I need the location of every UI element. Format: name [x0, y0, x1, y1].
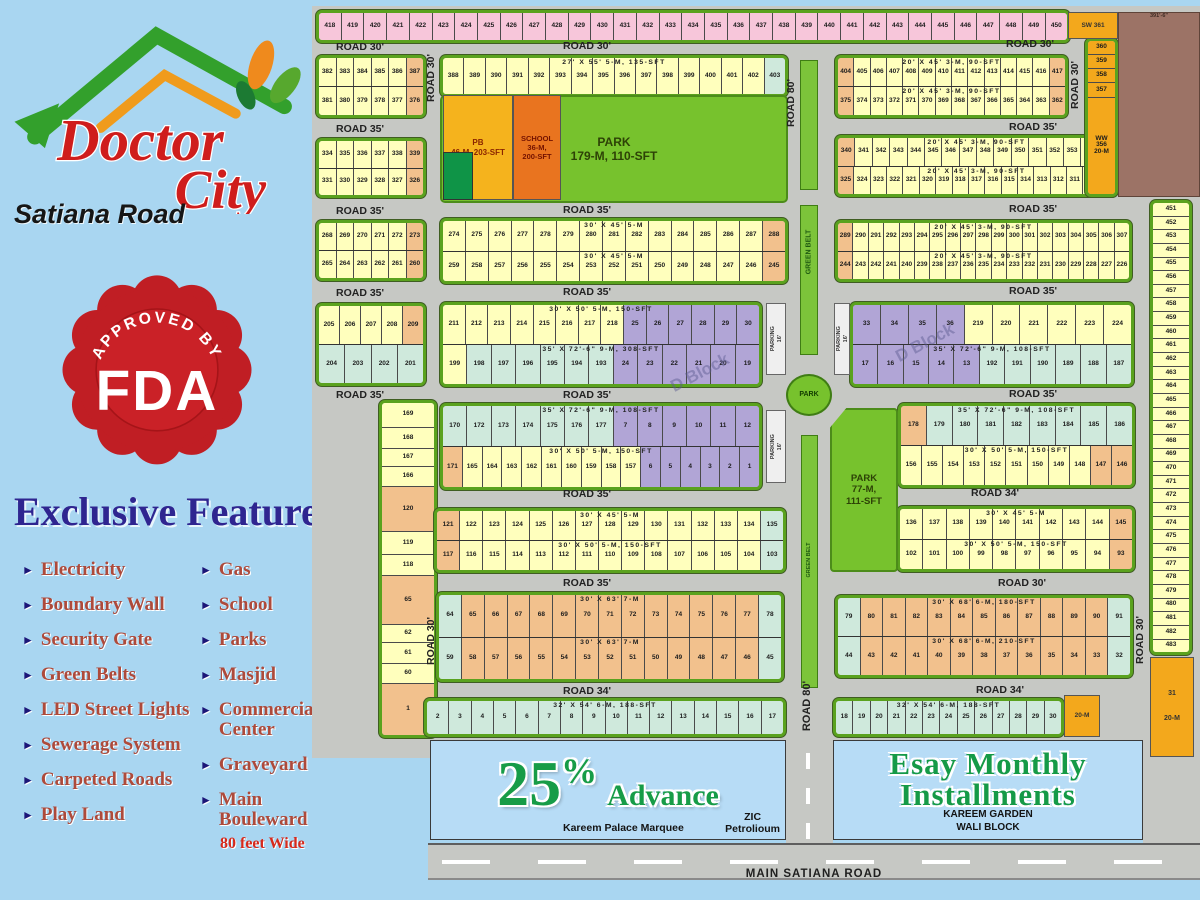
plot-cell: 55	[529, 638, 552, 680]
block-376-387: 382383384385386387381380379378377376	[316, 55, 426, 118]
plot-cell: 131	[667, 511, 690, 540]
plot-cell: 246	[739, 252, 762, 282]
block-32-91: 7980818283848586878889909130' X 68' 6-M,…	[835, 595, 1133, 678]
plot-cell: 230	[1052, 252, 1067, 280]
logo-word-city: City	[175, 159, 267, 214]
road-dash	[1114, 860, 1162, 864]
plot-cell: 128	[598, 511, 621, 540]
plot-cell: 100	[946, 540, 969, 570]
plot-cell: 272	[388, 223, 406, 250]
plot-cell: 360	[1088, 41, 1115, 54]
plot-cell: 311	[1066, 167, 1082, 195]
plot-cell: 8	[637, 406, 661, 446]
plot-cell: 459	[1153, 311, 1189, 325]
plot-cell: 472	[1153, 488, 1189, 502]
plot-cell: 11	[710, 406, 734, 446]
block-388-403: 3883893903913923933943953963973983994004…	[440, 55, 788, 97]
plot-cell: 393	[549, 58, 570, 94]
plot-cell: 195	[540, 345, 564, 384]
plot-cell: 58	[461, 638, 484, 680]
plot-cell: 259	[443, 252, 465, 282]
plot-cell: 30	[1044, 701, 1061, 734]
plot-cell: 298	[975, 223, 990, 251]
plot-cell: 97	[1015, 540, 1038, 570]
plot-cell: 45	[758, 638, 781, 680]
road-dash	[442, 860, 490, 864]
plot-cell: 369	[935, 87, 951, 115]
block-362-417: 4044054064074084094104114124134144154164…	[835, 55, 1068, 118]
plot-cell: 347	[959, 138, 976, 166]
plot-cell: 418	[319, 13, 341, 40]
plot-cell: 10	[605, 701, 627, 734]
plot-cell: 245	[762, 252, 785, 282]
plot-cell: 26	[974, 701, 991, 734]
plot-cell: 215	[533, 305, 556, 344]
plot-cell: 22	[905, 701, 922, 734]
plot-cell: 17	[761, 701, 783, 734]
brown-reserved-area: 391'-6"	[1118, 12, 1200, 197]
plot-cell: 321	[902, 167, 918, 195]
plot-cell: 178	[901, 406, 926, 445]
advance-percent-sign: %	[561, 751, 597, 791]
plot-cell: 206	[339, 306, 360, 344]
zic-petroleum-label: ZIC Petrolioum	[725, 811, 780, 835]
road-label: ROAD 30'	[1069, 61, 1081, 109]
plot-cell: 37	[995, 637, 1018, 675]
plot-cell: 205	[319, 306, 339, 344]
feature-item: ►Boundary Wall	[22, 595, 200, 615]
plot-cell: 139	[969, 509, 992, 539]
plot-cell: 402	[742, 58, 763, 94]
plot-cell: 185	[1080, 406, 1106, 445]
plot-cell: 3	[700, 447, 720, 487]
school-area: SCHOOL 36-M, 200-SFT	[513, 95, 561, 200]
block-187-224-dblock: 3334353621922022122222322417161514131921…	[850, 302, 1134, 387]
plot-cell: 415	[1016, 58, 1032, 86]
plot-cell: 53	[575, 638, 598, 680]
road-dash	[826, 860, 874, 864]
plot-cell: 384	[353, 58, 371, 86]
plot-cell: 222	[1047, 305, 1075, 344]
bullet-arrow-icon: ►	[200, 665, 212, 685]
plot-cell: 82	[905, 598, 928, 636]
plot-cell: 288	[762, 221, 785, 251]
road-label: ROAD 35'	[336, 123, 384, 135]
plot-cell: 336	[353, 141, 371, 168]
plot-cell: 239	[914, 252, 929, 280]
plot-cell: 89	[1062, 598, 1085, 636]
plot-cell: 216	[555, 305, 578, 344]
sw-plot-361-label: SW 361	[1081, 22, 1104, 30]
plot-cell: 198	[466, 345, 490, 384]
boulevard-width-note: 80 feet Wide	[220, 835, 318, 853]
plot-cell: 102	[900, 540, 922, 570]
plot-cell: 243	[852, 252, 867, 280]
plot-cell: 427	[522, 13, 545, 40]
plot-cell: 224	[1103, 305, 1131, 344]
plot-cell: 69	[552, 595, 575, 637]
feature-item: ►Green Belts	[22, 665, 200, 685]
plot-cell: 363	[1032, 87, 1048, 115]
block-2-17: 23456789101112131415161732' X 54' 6-M, 1…	[424, 698, 786, 737]
plot-cell: 413	[984, 58, 1000, 86]
plot-cell: 80	[860, 598, 883, 636]
block-146-186: 17817918018118218318418518635' X 72'-6" …	[898, 403, 1135, 488]
plot-cell: 180	[952, 406, 978, 445]
bullet-arrow-icon: ►	[22, 560, 34, 580]
plot-row: 331330329328327326	[319, 168, 423, 196]
road-label: GREEN BELT	[806, 542, 812, 577]
bullet-arrow-icon: ►	[200, 560, 212, 580]
plot-cell: 479	[1153, 584, 1189, 598]
gold-plot-31: 31 20-M	[1150, 657, 1194, 757]
plot-cell: 218	[600, 305, 623, 344]
plot-cell: 64	[439, 595, 461, 637]
feature-item: ►Electricity	[22, 560, 200, 580]
plot-cell: 104	[737, 541, 760, 570]
road-dash	[634, 860, 682, 864]
plot-cell: 299	[991, 223, 1006, 251]
plot-cell: 334	[319, 141, 336, 168]
feature-item: ►Commercial Center	[200, 700, 318, 740]
plot-cell: 15	[716, 701, 738, 734]
feature-item: ►Carpeted Roads	[22, 770, 200, 790]
plot-cell: 439	[795, 13, 818, 40]
plot-cell: 127	[575, 511, 598, 540]
plot-cell: 42	[882, 637, 905, 675]
features-column-1: ►Electricity►Boundary Wall►Security Gate…	[22, 560, 200, 863]
plot-cell: 193	[588, 345, 612, 384]
plot-cell: 7	[538, 701, 560, 734]
plot-cell: 1	[739, 447, 759, 487]
plot-cell: 421	[386, 13, 409, 40]
plot-row: 381380379378377376	[319, 86, 423, 115]
plot-cell: 35	[1040, 637, 1063, 675]
plot-cell: 388	[443, 58, 463, 94]
plot-cell: 47	[712, 638, 735, 680]
plot-cell: 203	[344, 345, 370, 383]
plot-cell: 14	[694, 701, 716, 734]
plot-cell: 400	[699, 58, 720, 94]
plot-cell: 77	[735, 595, 758, 637]
plot-cell: 477	[1153, 557, 1189, 571]
plot-cell: 162	[521, 447, 541, 487]
plot-cell: 377	[388, 87, 406, 115]
plot-cell: 429	[568, 13, 591, 40]
installments-line2: Installments	[834, 778, 1142, 813]
plot-cell: 101	[922, 540, 945, 570]
plot-cell: 87	[1017, 598, 1040, 636]
plot-cell: 160	[561, 447, 581, 487]
road-label: ROAD 35'	[563, 204, 611, 216]
plot-cell: 420	[363, 13, 386, 40]
plot-cell: 183	[1029, 406, 1055, 445]
feature-label: Security Gate	[41, 630, 152, 650]
plot-cell: 149	[1048, 446, 1069, 485]
plot-cell: 207	[360, 306, 381, 344]
plot-cell: 123	[482, 511, 505, 540]
plot-cell: 85	[972, 598, 995, 636]
road-label: ROAD 35'	[336, 287, 384, 299]
plot-cell: 78	[758, 595, 781, 637]
plot-cell: 142	[1039, 509, 1062, 539]
gold-plot-31-label: 31 20-M	[1164, 690, 1180, 724]
feature-item: ►Masjid	[200, 665, 318, 685]
plot-cell: 262	[371, 251, 389, 278]
plot-cell: 201	[397, 345, 423, 383]
plot-cell: 21	[887, 701, 904, 734]
plot-cell: 116	[459, 541, 482, 570]
plot-cell: 331	[319, 169, 336, 196]
plot-cell: 169	[382, 403, 434, 427]
plot-cell: 40	[927, 637, 950, 675]
plot-cell: 79	[838, 598, 860, 636]
plot-cell: 422	[409, 13, 432, 40]
block-326-339: 334335336337338339331330329328327326	[316, 138, 426, 198]
plot-cell: 405	[853, 58, 869, 86]
feature-item: ►Graveyard	[200, 755, 318, 775]
plot-cell: 111	[575, 541, 598, 570]
plot-cell: 152	[984, 446, 1005, 485]
road-30-right-lower	[1143, 743, 1200, 843]
plot-cell: 26	[646, 305, 669, 344]
brown-reserved-area-label: 391'-6"	[1150, 13, 1168, 20]
plot-row: 2892902912922932942952962972982993003013…	[838, 223, 1129, 251]
plot-cell: 255	[533, 252, 556, 282]
plot-cell: 359	[1088, 54, 1115, 68]
plot-cell: 456	[1153, 270, 1189, 284]
plot-cell: 364	[1016, 87, 1032, 115]
plot-cell: 419	[341, 13, 364, 40]
sw-plot-361: SW 361	[1068, 12, 1118, 39]
road-label: ROAD 35'	[563, 389, 611, 401]
plot-cell: 39	[950, 637, 973, 675]
plot-cell: 426	[500, 13, 523, 40]
plot-cell: 406	[870, 58, 886, 86]
plot-cell: 105	[714, 541, 737, 570]
park-roundabout: PARK	[786, 374, 832, 416]
plot-cell: 482	[1153, 625, 1189, 639]
plot-cell: 285	[693, 221, 716, 251]
bullet-arrow-icon: ►	[200, 790, 212, 830]
plot-cell: 296	[945, 223, 960, 251]
plot-cell: 387	[406, 58, 424, 86]
plot-cell: 173	[491, 406, 515, 446]
plot-cell: 258	[465, 252, 488, 282]
plot-cell: 269	[336, 223, 354, 250]
pink-strip-top: 4184194204214224234244254264274284294304…	[316, 10, 1070, 43]
advance-offer-box: 25%Advance Kareem Palace Marquee ZIC Pet…	[430, 740, 786, 840]
plot-cell: 280	[579, 221, 602, 251]
plot-cell: 86	[995, 598, 1018, 636]
plot-cell: 368	[951, 87, 967, 115]
plot-row: 1819202122232425262728293032' X 54' 6-M,…	[836, 701, 1061, 734]
plot-cell: 27	[668, 305, 691, 344]
plot-cell: 287	[739, 221, 762, 251]
plot-cell: 95	[1062, 540, 1085, 570]
plot-cell: 24	[939, 701, 956, 734]
plot-cell: 190	[1030, 345, 1055, 384]
plot-cell: 138	[946, 509, 969, 539]
plot-cell: 330	[336, 169, 354, 196]
plot-row: 15615515415315215115014914814714630' X 5…	[901, 445, 1132, 485]
bullet-arrow-icon: ►	[22, 630, 34, 650]
plot-cell: 449	[1022, 13, 1045, 40]
green-belt-top	[800, 60, 818, 190]
plot-cell: 176	[564, 406, 588, 446]
plot-cell: 228	[1083, 252, 1098, 280]
block-260-273: 268269270271272273265264263262261260	[316, 220, 426, 281]
plot-row: 33343536219220221222223224	[853, 305, 1131, 344]
plot-cell: 192	[979, 345, 1004, 384]
plot-cell: 445	[931, 13, 954, 40]
park-roundabout-label: PARK	[799, 391, 818, 399]
kareem-garden-label: KAREEM GARDEN WALI BLOCK	[834, 809, 1142, 834]
plot-cell: 284	[671, 221, 694, 251]
plot-cell: 286	[716, 221, 739, 251]
parking-strip-3-label: PARKING 16'	[769, 434, 782, 459]
plot-cell: 261	[388, 251, 406, 278]
plot-cell: 25	[623, 305, 646, 344]
plot-cell: 463	[1153, 366, 1189, 380]
plot-row: 17116516416316216116015915815765432130' …	[443, 446, 759, 487]
plot-cell: 28	[691, 305, 714, 344]
plot-cell: 68	[529, 595, 552, 637]
plot-cell: 172	[466, 406, 490, 446]
plot-cell: 414	[1000, 58, 1016, 86]
plot-cell: 46	[735, 638, 758, 680]
plot-cell: 117	[437, 541, 459, 570]
plot-cell: 455	[1153, 257, 1189, 271]
plot-cell: 375	[838, 87, 853, 115]
plot-cell: 324	[853, 167, 869, 195]
plot-cell: 475	[1153, 529, 1189, 543]
plot-cell: 113	[529, 541, 552, 570]
plot-cell: 399	[678, 58, 699, 94]
plot-cell: 254	[556, 252, 579, 282]
plot-row: 382383384385386387	[319, 58, 423, 86]
road-label: ROAD 35'	[1009, 203, 1057, 215]
plot-cell: 447	[976, 13, 999, 40]
kareem-palace-label: Kareem Palace Marquee	[563, 822, 684, 834]
plot-cell: 473	[1153, 502, 1189, 516]
plot-cell: 438	[772, 13, 795, 40]
plot-cell: 253	[579, 252, 602, 282]
plot-cell: 352	[1046, 138, 1063, 166]
feature-label: Electricity	[41, 560, 125, 580]
plot-cell: 81	[882, 598, 905, 636]
plot-cell: 91	[1107, 598, 1130, 636]
plot-cell: 424	[454, 13, 477, 40]
plot-cell: 107	[667, 541, 690, 570]
plot-cell: 174	[515, 406, 539, 446]
plot-cell: 423	[432, 13, 455, 40]
plot-cell: 300	[1006, 223, 1021, 251]
main-satiana-road: MAIN SATIANA ROAD	[428, 843, 1200, 880]
parking-strip-1-label: PARKING 16'	[769, 327, 782, 352]
road-label: ROAD 30'	[336, 41, 384, 53]
plot-cell: 226	[1114, 252, 1129, 280]
plot-cell: 365	[1000, 87, 1016, 115]
feature-label: Boundary Wall	[41, 595, 165, 615]
plot-cell: 327	[388, 169, 406, 196]
plot-cell: 4	[471, 701, 493, 734]
advance-word: Advance	[607, 779, 719, 812]
parking-strip-3: PARKING 16'	[766, 410, 786, 483]
plot-cell: 372	[886, 87, 902, 115]
plot-cell: 353	[1063, 138, 1080, 166]
advance-number: 25	[497, 748, 561, 819]
road-dash	[806, 788, 810, 804]
plot-cell: 451	[1153, 203, 1189, 216]
plot-cell: 20	[870, 701, 887, 734]
road-label: ROAD 30'	[425, 54, 437, 102]
plot-cell: 376	[406, 87, 424, 115]
plot-cell: 302	[1037, 223, 1052, 251]
plot-cell: 27	[992, 701, 1009, 734]
plot-cell: 326	[406, 169, 424, 196]
plot-cell: 209	[402, 306, 423, 344]
plot-cell: 446	[954, 13, 977, 40]
plot-cell: 391	[506, 58, 527, 94]
plot-cell: 416	[1032, 58, 1048, 86]
plot-cell: 151	[1005, 446, 1026, 485]
plot-cell: 161	[541, 447, 561, 487]
plot-cell: 155	[921, 446, 942, 485]
plot-cell: 464	[1153, 379, 1189, 393]
doctor-city-logo: Doctor City	[4, 2, 309, 214]
plot-cell: 122	[459, 511, 482, 540]
plot-cell: 351	[1028, 138, 1045, 166]
plot-cell: 386	[388, 58, 406, 86]
plot-cell: 282	[625, 221, 648, 251]
plot-cell: 136	[900, 509, 922, 539]
plot-cell: 4	[680, 447, 700, 487]
plot-cell: 433	[659, 13, 682, 40]
plot-cell: 146	[1111, 446, 1132, 485]
plot-cell: 385	[371, 58, 389, 86]
plot-cell: 265	[319, 251, 336, 278]
plot-cell: 237	[945, 252, 960, 280]
plot-cell: 208	[381, 306, 402, 344]
plot-cell: 390	[485, 58, 506, 94]
plot-cell: 297	[960, 223, 975, 251]
road-label: ROAD 35'	[1009, 121, 1057, 133]
plot-cell: 194	[564, 345, 588, 384]
plot-cell: 154	[942, 446, 963, 485]
plot-cell: 163	[501, 447, 521, 487]
feature-item: ►Parks	[200, 630, 318, 650]
plot-cell: 395	[592, 58, 613, 94]
plot-row: 23456789101112131415161732' X 54' 6-M, 1…	[427, 701, 783, 734]
plot-cell: 204	[319, 345, 344, 383]
plot-cell: 2	[427, 701, 448, 734]
plot-row: 204203202201	[319, 344, 423, 383]
road-label: ROAD 30'	[425, 617, 437, 665]
plot-cell: 313	[1033, 167, 1049, 195]
plot-cell: 468	[1153, 434, 1189, 448]
school-area-label: SCHOOL 36-M, 200-SFT	[521, 134, 553, 161]
plot-cell: 212	[465, 305, 488, 344]
plot-row: 2592582572562552542532522512502492482472…	[443, 251, 785, 282]
feature-label: School	[219, 595, 273, 615]
plot-cell: 238	[929, 252, 944, 280]
plot-cell: 252	[602, 252, 625, 282]
plot-cell: 8	[560, 701, 582, 734]
fda-approval-seal: APPROVED BY FDA	[52, 270, 262, 475]
plot-cell: 444	[908, 13, 931, 40]
plot-cell: 28	[1009, 701, 1026, 734]
